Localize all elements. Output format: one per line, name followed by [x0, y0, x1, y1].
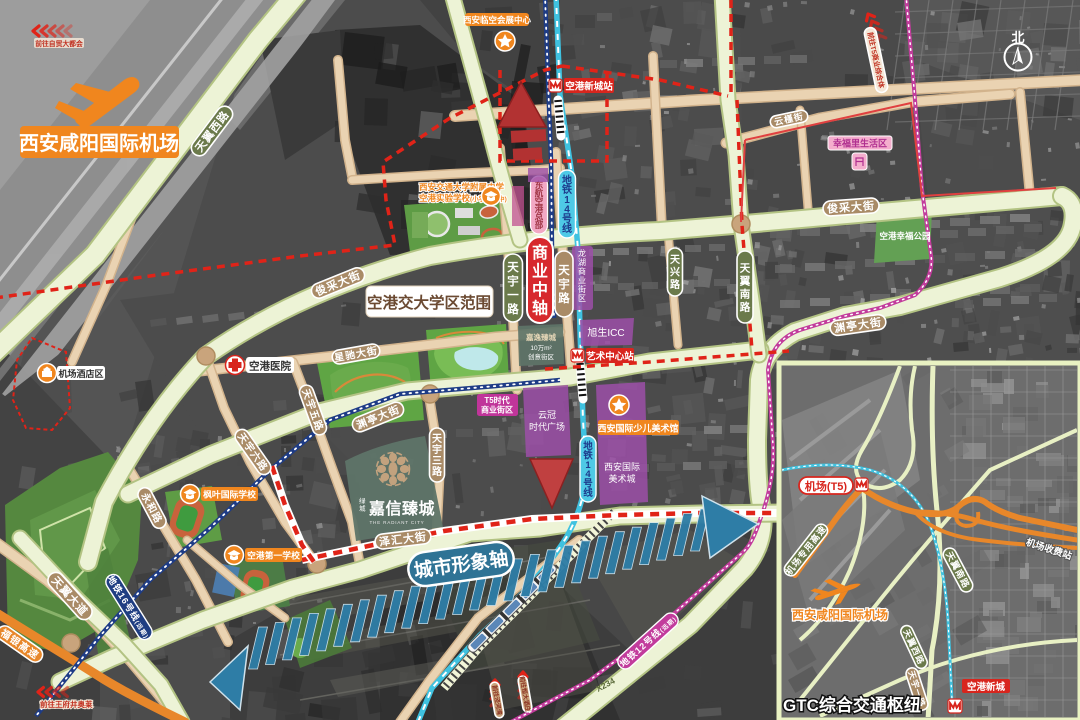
svg-text:空港新城站: 空港新城站: [565, 81, 613, 93]
svg-text:空港新城: 空港新城: [967, 681, 1006, 693]
svg-text:西安临空会展中心: 西安临空会展中心: [463, 15, 532, 25]
svg-text:商业中轴: 商业中轴: [532, 243, 548, 318]
svg-text:嘉逸臻城: 嘉逸臻城: [525, 332, 556, 342]
svg-text:THE RADIANT CITY: THE RADIANT CITY: [369, 520, 424, 525]
svg-text:西安咸阳国际机场: 西安咸阳国际机场: [19, 131, 179, 155]
svg-text:西安国际少儿美术馆: 西安国际少儿美术馆: [597, 423, 678, 434]
svg-text:空港医院: 空港医院: [249, 360, 291, 373]
svg-text:嘉信臻城: 嘉信臻城: [368, 499, 435, 518]
svg-text:天宇三路: 天宇三路: [432, 433, 443, 478]
svg-text:天翼南路: 天翼南路: [739, 262, 751, 313]
svg-text:T5时代商业街区: T5时代商业街区: [481, 395, 513, 415]
svg-text:10万m²: 10万m²: [530, 344, 552, 352]
svg-text:机场酒店区: 机场酒店区: [58, 368, 103, 379]
svg-text:天兴路: 天兴路: [670, 254, 681, 291]
svg-text:艺术中心站: 艺术中心站: [586, 351, 634, 363]
svg-text:绿: 绿: [359, 496, 366, 505]
svg-text:西安咸阳国际机场: 西安咸阳国际机场: [792, 607, 888, 622]
svg-text:枫叶国际学校: 枫叶国际学校: [203, 489, 256, 500]
svg-text:龙湖商业街区: 龙湖商业街区: [578, 248, 586, 303]
svg-text:创意街区: 创意街区: [528, 352, 555, 361]
svg-text:空港交大学区范围: 空港交大学区范围: [367, 293, 491, 312]
svg-text:城: 城: [359, 505, 366, 513]
svg-text:前往自贸大都会: 前往自贸大都会: [35, 39, 83, 48]
svg-text:天宇路: 天宇路: [558, 264, 570, 305]
svg-text:空港幸福公园: 空港幸福公园: [879, 231, 930, 241]
svg-text:GTC综合交通枢纽: GTC综合交通枢纽: [783, 695, 921, 715]
svg-text:旭生ICC: 旭生ICC: [587, 326, 624, 339]
svg-text:空港第一学校: 空港第一学校: [247, 550, 300, 561]
svg-text:机场(T5): 机场(T5): [805, 479, 847, 493]
svg-text:幸福里生活区: 幸福里生活区: [833, 138, 887, 149]
svg-text:东航空港总部: 东航空港总部: [535, 180, 544, 230]
svg-text:前往王府井奥莱: 前往王府井奥莱: [40, 699, 93, 709]
